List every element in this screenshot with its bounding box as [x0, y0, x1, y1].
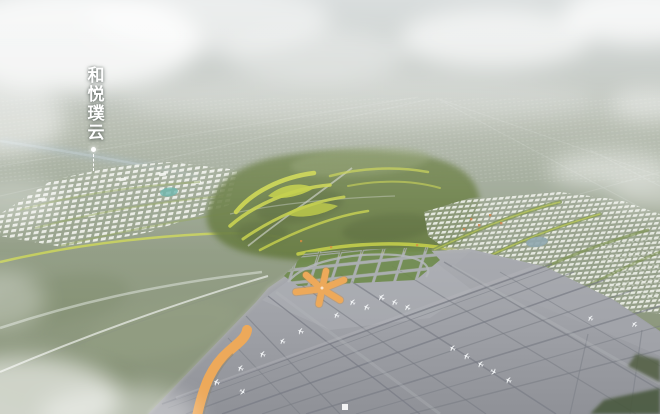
aerial-masterplan-render: 和悦璞云 — [0, 0, 660, 414]
scene-svg — [0, 0, 660, 414]
atmospheric-veil — [0, 0, 660, 414]
